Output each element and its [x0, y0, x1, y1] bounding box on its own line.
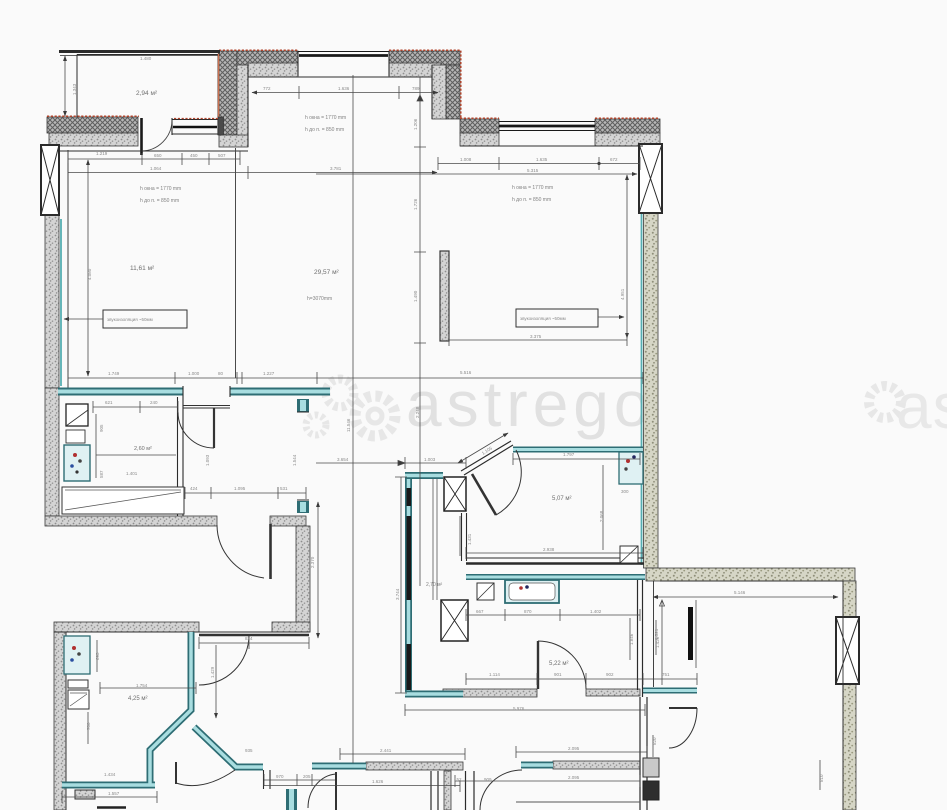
svg-text:772: 772	[263, 86, 271, 91]
svg-text:1.429: 1.429	[210, 666, 215, 678]
svg-text:424: 424	[190, 486, 198, 491]
svg-text:1.064: 1.064	[150, 166, 162, 171]
svg-text:h до п. = 850 mm: h до п. = 850 mm	[140, 198, 179, 204]
svg-text:1.480: 1.480	[140, 56, 152, 61]
svg-text:1.402: 1.402	[590, 609, 602, 614]
svg-text:1.636: 1.636	[338, 86, 350, 91]
svg-text:1.431: 1.431	[467, 533, 472, 545]
svg-text:1.114: 1.114	[489, 672, 500, 677]
svg-text:1.726: 1.726	[413, 198, 418, 210]
svg-text:902: 902	[606, 672, 614, 677]
svg-text:621: 621	[105, 400, 113, 405]
svg-text:as: as	[896, 370, 947, 442]
svg-text:205: 205	[303, 774, 311, 779]
svg-text:2,60 м²: 2,60 м²	[134, 446, 152, 452]
svg-text:29,57 м²: 29,57 м²	[314, 269, 340, 276]
svg-text:531: 531	[280, 486, 288, 491]
svg-text:3.375: 3.375	[530, 334, 542, 339]
svg-text:1.219: 1.219	[96, 151, 108, 156]
svg-text:667: 667	[476, 609, 484, 614]
svg-text:300: 300	[621, 489, 629, 494]
svg-text:1.008: 1.008	[460, 157, 472, 162]
svg-text:5,22 м²: 5,22 м²	[549, 661, 568, 667]
svg-text:820: 820	[652, 737, 657, 745]
svg-text:2.938: 2.938	[543, 547, 555, 552]
svg-text:h окна = 1770 mm: h окна = 1770 mm	[512, 185, 553, 191]
svg-text:1.095: 1.095	[234, 486, 246, 491]
svg-text:11,61 м²: 11,61 м²	[130, 265, 155, 272]
svg-text:751: 751	[662, 672, 670, 677]
svg-text:3.781: 3.781	[330, 166, 342, 171]
svg-text:5.976: 5.976	[513, 706, 525, 711]
svg-text:5.146: 5.146	[734, 590, 746, 595]
svg-text:1.401: 1.401	[126, 471, 138, 476]
svg-text:1.490: 1.490	[413, 290, 418, 302]
svg-text:870: 870	[524, 609, 532, 614]
svg-text:1.626: 1.626	[372, 779, 384, 784]
svg-text:h окна = 1770 mm: h окна = 1770 mm	[305, 115, 346, 121]
svg-text:11.546: 11.546	[346, 418, 351, 432]
svg-text:5,07 м²: 5,07 м²	[552, 496, 571, 502]
svg-text:1.557: 1.557	[108, 791, 120, 796]
svg-text:h=3070mm: h=3070mm	[307, 296, 332, 302]
svg-text:1.003: 1.003	[424, 457, 436, 462]
svg-text:1.749: 1.749	[108, 371, 120, 376]
svg-text:5.516: 5.516	[460, 370, 472, 375]
svg-text:3.654: 3.654	[337, 457, 349, 462]
svg-text:звукоизоляция ~50мм: звукоизоляция ~50мм	[107, 317, 153, 322]
svg-text:astrego: astrego	[406, 368, 654, 440]
svg-text:2.095: 2.095	[568, 775, 580, 780]
svg-text:4.080: 4.080	[87, 268, 92, 280]
svg-text:672: 672	[610, 157, 618, 162]
svg-text:901: 901	[554, 672, 562, 677]
svg-text:1.000: 1.000	[188, 371, 200, 376]
svg-text:450: 450	[190, 153, 198, 158]
svg-text:1.227: 1.227	[263, 371, 275, 376]
svg-text:4.951: 4.951	[620, 288, 625, 300]
svg-text:909: 909	[484, 777, 492, 782]
svg-text:2.068: 2.068	[599, 510, 604, 522]
svg-text:80: 80	[218, 371, 224, 376]
svg-text:507: 507	[218, 153, 226, 158]
svg-text:824: 824	[245, 636, 253, 641]
svg-text:1.521: 1.521	[654, 628, 659, 640]
svg-text:2.248: 2.248	[415, 406, 420, 418]
svg-text:810: 810	[819, 774, 824, 782]
svg-text:2.441: 2.441	[380, 748, 392, 753]
svg-text:1.206: 1.206	[413, 118, 418, 130]
svg-text:693: 693	[95, 652, 100, 660]
svg-text:h до п. = 850 mm: h до п. = 850 mm	[512, 197, 551, 203]
svg-text:1.754: 1.754	[136, 683, 148, 688]
svg-text:1.434: 1.434	[104, 772, 116, 777]
svg-text:h до п. = 850 mm: h до п. = 850 mm	[305, 127, 344, 133]
svg-text:2,70 м²: 2,70 м²	[426, 582, 443, 588]
svg-text:4,25 м²: 4,25 м²	[128, 696, 147, 702]
svg-text:1.635: 1.635	[536, 157, 548, 162]
svg-text:780: 780	[86, 722, 91, 730]
svg-text:h окна = 1770 mm: h окна = 1770 mm	[140, 186, 181, 192]
svg-text:935: 935	[245, 748, 253, 753]
svg-text:2.095: 2.095	[568, 746, 580, 751]
svg-text:587: 587	[99, 470, 104, 478]
svg-text:3.744: 3.744	[395, 588, 400, 600]
svg-text:240: 240	[150, 400, 158, 405]
svg-text:1.797: 1.797	[563, 452, 575, 457]
svg-text:1.093: 1.093	[205, 454, 210, 466]
svg-text:152: 152	[454, 777, 462, 782]
svg-text:1.544: 1.544	[292, 454, 297, 466]
svg-text:1.343: 1.343	[72, 83, 77, 95]
svg-text:789: 789	[412, 86, 420, 91]
svg-text:5.315: 5.315	[527, 168, 539, 173]
svg-text:звукоизоляция ~50мм: звукоизоляция ~50мм	[520, 316, 566, 321]
svg-text:650: 650	[154, 153, 162, 158]
svg-text:970: 970	[276, 774, 284, 779]
svg-text:905: 905	[99, 424, 104, 432]
svg-text:2.370: 2.370	[310, 556, 315, 568]
svg-text:2,94 м²: 2,94 м²	[136, 90, 158, 97]
svg-text:1.846: 1.846	[629, 633, 634, 645]
